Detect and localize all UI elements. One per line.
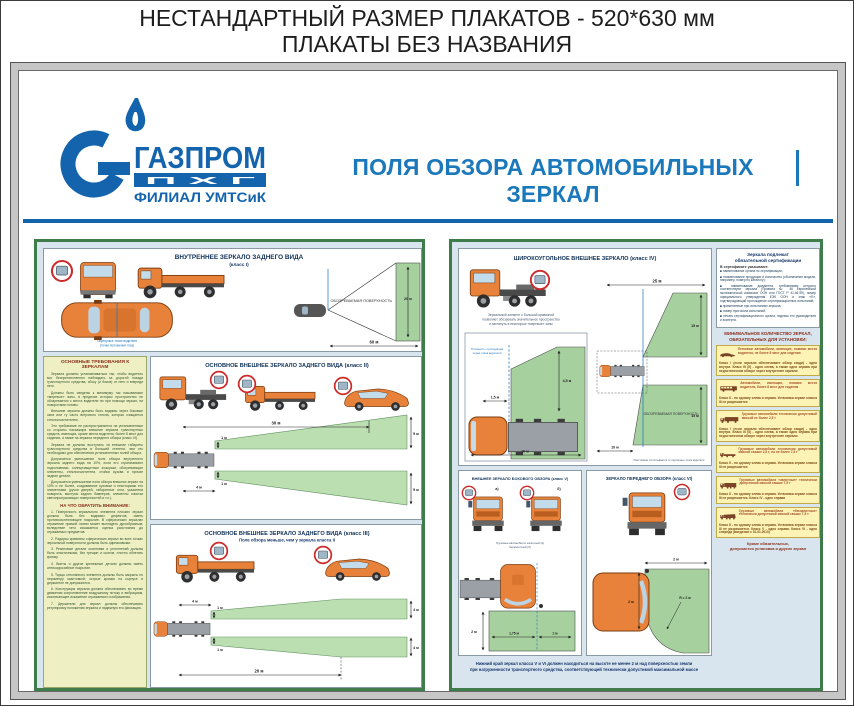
req-p3: Внешние зеркала должны быть видимы через… bbox=[47, 409, 143, 421]
req-p4: Это требование не распространяется на ус… bbox=[47, 424, 143, 440]
class4-caption-3: и заглянуть в некоторые «мертвые» зоны bbox=[489, 322, 553, 326]
card-classes: Класс II - по одному слева и справа. Уст… bbox=[719, 397, 817, 404]
class4-near-dim: 10 м bbox=[611, 446, 619, 450]
class5-caption-2: бескапотный (б) bbox=[509, 545, 531, 549]
class2-length: 30 м bbox=[272, 421, 281, 426]
req-p2: Должны быть сведены к минимуму так назыв… bbox=[47, 391, 143, 407]
mirror-callout-icon bbox=[315, 547, 332, 564]
plane-note-2: через глаза водителя bbox=[473, 351, 502, 355]
card-desc: Автомобили, имеющие, помимо места водите… bbox=[740, 382, 817, 389]
class5-w2: 1 м bbox=[552, 631, 558, 635]
class2-far-bottom: 5 м bbox=[413, 488, 419, 492]
truck-front-icon bbox=[526, 497, 561, 531]
brand-name: ГАЗПРОМ bbox=[134, 140, 266, 175]
class5-surface bbox=[489, 611, 575, 651]
att-4: 4. Винты и другие крепежные детали должн… bbox=[47, 562, 143, 570]
class4-inset-h: 4,5 м bbox=[563, 379, 572, 383]
truck-icon bbox=[719, 448, 737, 461]
right-panel: ШИРОКОУГОЛЬНОЕ ВНЕШНЕЕ ЗЕРКАЛО (класс IV… bbox=[449, 239, 823, 691]
card-desc: Грузовые автомобили «капотные» техническ… bbox=[740, 479, 818, 486]
car-side-icon bbox=[719, 348, 736, 361]
cab-top-icon bbox=[593, 573, 649, 631]
title-accent-bar bbox=[796, 150, 799, 186]
cert-item: ■ печать сертификационного органа, подпи… bbox=[720, 315, 816, 323]
truck-side-icon bbox=[246, 386, 315, 410]
card-classes: Класс I (если зеркало обеспечивает обзор… bbox=[719, 362, 817, 373]
hatchback-icon bbox=[345, 389, 409, 411]
req-p5: Зеркала не должны выступать за внешние г… bbox=[47, 443, 143, 455]
poster-page: НЕСТАНДАРТНЫЙ РАЗМЕР ПЛАКАТОВ - 520*630 … bbox=[0, 0, 854, 706]
mirror-callout-icon bbox=[675, 485, 690, 500]
class3-far-top: 4 м bbox=[413, 608, 419, 612]
poster-title: ПОЛЯ ОБЗОРА АВТОМОБИЛЬНЫХ ЗЕРКАЛ bbox=[318, 154, 788, 208]
mirror-card: Легковые автомобили, имеющие, помимо мес… bbox=[716, 345, 820, 377]
truck-top-icon bbox=[154, 452, 214, 469]
mirror-callout-icon bbox=[335, 378, 352, 395]
other-mirrors-note: Кроме обязательных, допускается установк… bbox=[716, 542, 820, 552]
poster-inner: ГАЗПРОМ П Х Г ФИЛИАЛ УМТСиК ПОЛЯ ОБЗОРА … bbox=[18, 70, 838, 692]
van-rear-icon bbox=[80, 262, 115, 298]
mirror-callout-icon bbox=[531, 271, 549, 289]
mirror-card: Грузовые автомобили технически допустимо… bbox=[716, 410, 820, 442]
truck-front-icon bbox=[623, 493, 667, 535]
class5-w1: 1,75 м bbox=[509, 631, 519, 635]
certification-list: ■ наименование органа по сертификации; ■… bbox=[720, 270, 816, 323]
brand-branch: ФИЛИАЛ УМТСиК bbox=[134, 189, 266, 205]
class4-title: ШИРОКОУГОЛЬНОЕ ВНЕШНЕЕ ЗЕРКАЛО (класс IV… bbox=[514, 256, 657, 262]
card-classes: Класс II - по одному слева и справа. Уст… bbox=[719, 524, 817, 535]
att-7: 7. Держатели для зеркал должны обеспечив… bbox=[47, 602, 143, 610]
class3-subtitle: Поле обзора меньше, чем у зеркала класса… bbox=[239, 538, 335, 543]
class2-diagram: ОСНОВНОЕ ВНЕШНЕЕ ЗЕРКАЛО ЗАДНЕГО ВИДА (к… bbox=[151, 357, 422, 520]
class4-length: 25 м bbox=[653, 278, 662, 283]
truck-top-icon bbox=[154, 621, 210, 636]
gazprom-g-icon bbox=[59, 129, 130, 199]
card-desc: Грузовые автомобили технически допустимо… bbox=[742, 413, 817, 420]
page-title: НЕСТАНДАРТНЫЙ РАЗМЕР ПЛАКАТОВ - 520*630 … bbox=[1, 5, 853, 57]
other-mirrors-note-line2: допускается установка и других зеркал bbox=[716, 547, 820, 552]
class2-near-top: 1 м bbox=[221, 436, 227, 440]
att-5: 5. Торцы стеклянного элемента должны быт… bbox=[47, 573, 143, 585]
class1-klass: (класс I) bbox=[229, 262, 249, 268]
class2-far-top: 5 м bbox=[413, 432, 419, 436]
class6-panel: ЗЕРКАЛО ПЕРЕДНЕГО ОБЗОРА (класс VI) 2 м … bbox=[586, 470, 712, 656]
heavy-truck-icon bbox=[719, 479, 738, 492]
certification-title-2: обязательной сертификации bbox=[720, 258, 816, 264]
class5-title: ВНЕШНЕЕ ЗЕРКАЛО БОКОВОГО ОБЗОРА (класс V… bbox=[472, 477, 569, 481]
card-desc: Легковые автомобили, имеющие, помимо мес… bbox=[738, 348, 817, 355]
mirror-callout-icon bbox=[211, 372, 228, 389]
attention-title: НА ЧТО ОБРАТИТЬ ВНИМАНИЕ: bbox=[47, 503, 143, 508]
requirements-panel: ОСНОВНЫЕ ТРЕБОВАНИЯ К ЗЕРКАЛАМ Зеркала д… bbox=[43, 356, 147, 688]
trailer-top-icon bbox=[508, 419, 577, 455]
req-p1: Зеркала должны устанавливаться так, чтоб… bbox=[47, 372, 143, 388]
class5-label-b: б) bbox=[557, 487, 561, 491]
class1-surface-label: ОБОЗРЕВАЕМАЯ ПОВЕРХНОСТЬ bbox=[331, 299, 393, 303]
class2-panel: ОСНОВНОЕ ВНЕШНЕЕ ЗЕРКАЛО ЗАДНЕГО ВИДА (к… bbox=[150, 356, 422, 520]
mirror-card: Грузовые автомобили «капотные» техническ… bbox=[716, 476, 820, 504]
class2-offset: 4 м bbox=[196, 486, 202, 490]
class6-r: R = 2 м bbox=[679, 596, 691, 600]
cabover-truck-icon bbox=[719, 510, 737, 523]
class3-offset: 4 м bbox=[192, 600, 198, 604]
card-desc: Грузовые автомобили технически допустимо… bbox=[739, 448, 817, 455]
gazprom-logo: ГАЗПРОМ П Х Г ФИЛИАЛ УМТСиК bbox=[38, 96, 278, 216]
class3-diagram: ОСНОВНОЕ ВНЕШНЕЕ ЗЕРКАЛО ЗАДНЕГО ВИДА (к… bbox=[151, 525, 422, 688]
req-p7: Допускается уменьшение поля обзора внешн… bbox=[47, 480, 143, 500]
cert-item: ■ наименование продукции и количество (о… bbox=[720, 276, 816, 284]
att-3: 3. Резиновые детали окантовки и уплотнен… bbox=[47, 547, 143, 559]
class6-front-dim: 2 м bbox=[673, 557, 679, 561]
card-desc: Грузовые автомобили «бескапотные» технич… bbox=[739, 510, 817, 517]
page-title-line1: НЕСТАНДАРТНЫЙ РАЗМЕР ПЛАКАТОВ - 520*630 … bbox=[1, 5, 853, 31]
brand-unit: П Х Г bbox=[145, 176, 256, 187]
class4-surface-label: ОБОЗРЕВАЕМАЯ ПОВЕРХНОСТЬ bbox=[644, 412, 700, 416]
requirements-title: ОСНОВНЫЕ ТРЕБОВАНИЯ К ЗЕРКАЛАМ bbox=[47, 360, 143, 370]
eye-note-2: (точки положения глаз) bbox=[100, 344, 134, 348]
truck-front-icon bbox=[468, 497, 503, 531]
class4-top-dim: 15 м bbox=[691, 324, 699, 328]
class4-caption-1: Зеркальный элемент с большой кривизной bbox=[488, 313, 554, 317]
page-title-line2: ПЛАКАТЫ БЕЗ НАЗВАНИЯ bbox=[1, 31, 853, 57]
mirror-card: Грузовые автомобили технически допустимо… bbox=[716, 445, 820, 473]
bus-side-icon bbox=[719, 382, 738, 395]
class4-inset-w: 1,5 м bbox=[491, 396, 500, 400]
mirror-callout-icon bbox=[239, 376, 256, 393]
minimum-title: МИНИМАЛЬНОЕ КОЛИЧЕСТВО ЗЕРКАЛ, ОБЯЗАТЕЛЬ… bbox=[716, 331, 820, 342]
left-panel: ВНУТРЕННЕЕ ЗЕРКАЛО ЗАДНЕГО ВИДА (класс I… bbox=[34, 239, 425, 691]
att-1: 1. Поверхность зеркального элемента плос… bbox=[47, 510, 143, 534]
class56-note: Нижний край зеркал класса V и VI должен … bbox=[458, 661, 710, 672]
class2-title: ОСНОВНОЕ ВНЕШНЕЕ ЗЕРКАЛО ЗАДНЕГО ВИДА (к… bbox=[205, 363, 369, 369]
mirror-card: Автомобили, имеющие, помимо места водите… bbox=[716, 379, 820, 407]
class3-panel: ОСНОВНОЕ ВНЕШНЕЕ ЗЕРКАЛО ЗАДНЕГО ВИДА (к… bbox=[150, 524, 422, 688]
cert-item: ■ наименование органа по сертификации; bbox=[720, 270, 816, 274]
card-classes: Класс II - по одному слева и справа. Уст… bbox=[719, 493, 817, 500]
class4-note: Расстояние отсчитывается от окулярных то… bbox=[634, 458, 705, 462]
att-6: 6. Конструкция зеркала должна обеспечива… bbox=[47, 587, 143, 599]
class5-label-a: а) bbox=[495, 487, 499, 491]
req-p6: Допускается уменьшение поля обзора внутр… bbox=[47, 457, 143, 477]
card-classes: Класс II - по одному слева и справа. Уст… bbox=[719, 462, 817, 469]
gazprom-flame-icon bbox=[126, 98, 146, 131]
cab-top-icon bbox=[501, 564, 536, 608]
class6-title: ЗЕРКАЛО ПЕРЕДНЕГО ОБЗОРА (класс VI) bbox=[606, 476, 693, 481]
class4-panel: ШИРОКОУГОЛЬНОЕ ВНЕШНЕЕ ЗЕРКАЛО (класс IV… bbox=[458, 248, 712, 466]
class56-note-line2: при нагруженности транспортного средства… bbox=[458, 667, 710, 673]
class1-panel: ВНУТРЕННЕЕ ЗЕРКАЛО ЗАДНЕГО ВИДА (класс I… bbox=[43, 248, 422, 352]
class5-diagram: ВНЕШНЕЕ ЗЕРКАЛО БОКОВОГО ОБЗОРА (класс V… bbox=[459, 471, 581, 655]
trailer-top-icon bbox=[460, 578, 502, 600]
class56-note-line1: Нижний край зеркал класса V и VI должен … bbox=[458, 661, 710, 667]
mirror-callout-icon bbox=[520, 486, 533, 499]
class5-h: 2 м bbox=[471, 630, 477, 634]
class1-title: ВНУТРЕННЕЕ ЗЕРКАЛО ЗАДНЕГО ВИДА bbox=[175, 254, 304, 261]
truck-top-icon bbox=[600, 365, 644, 377]
class3-near-bottom: 1 м bbox=[217, 648, 223, 652]
class4-caption-2: позволяет обозревать значительное простр… bbox=[482, 318, 560, 322]
mirror-callout-icon bbox=[211, 543, 228, 560]
right-column: Зеркала подлежат обязательной сертификац… bbox=[716, 248, 820, 686]
mirror-callout-icon bbox=[462, 486, 475, 499]
att-2: 2. Радиусы кривизны сферических зеркал в… bbox=[47, 537, 143, 545]
header-rule bbox=[23, 219, 833, 223]
class6-diagram: ЗЕРКАЛО ПЕРЕДНЕГО ОБЗОРА (класс VI) 2 м … bbox=[587, 471, 711, 655]
light-truck-icon bbox=[719, 413, 740, 426]
class6-h: 2 м bbox=[628, 600, 634, 604]
class5-panel: ВНЕШНЕЕ ЗЕРКАЛО БОКОВОГО ОБЗОРА (класс V… bbox=[458, 470, 582, 656]
certification-panel: Зеркала подлежат обязательной сертификац… bbox=[716, 248, 820, 328]
mirror-callout-icon bbox=[52, 261, 72, 281]
cert-item: ■ наименование документа, требованиям ко… bbox=[720, 285, 816, 304]
class3-title: ОСНОВНОЕ ВНЕШНЕЕ ЗЕРКАЛО ЗАДНЕГО ВИДА (к… bbox=[204, 531, 369, 537]
class1-diagram: ВНУТРЕННЕЕ ЗЕРКАЛО ЗАДНЕГО ВИДА (класс I… bbox=[44, 249, 422, 351]
card-classes: Класс I (если зеркало обеспечивает обзор… bbox=[719, 428, 817, 439]
class3-far-bottom: 4 м bbox=[413, 646, 419, 650]
hatchback-icon bbox=[326, 559, 390, 581]
eye-note-1: Окулярные точки водителя bbox=[97, 339, 137, 343]
class4-diagram: ШИРОКОУГОЛЬНОЕ ВНЕШНЕЕ ЗЕРКАЛО (класс IV… bbox=[459, 249, 711, 465]
class6-surface bbox=[645, 569, 709, 653]
small-car-top-icon bbox=[294, 304, 326, 317]
class2-near-bottom: 1 м bbox=[221, 482, 227, 486]
truck-side-icon bbox=[138, 268, 224, 298]
class3-length: 20 м bbox=[255, 669, 264, 674]
class1-height-dim: 20 м bbox=[404, 297, 412, 301]
poster-frame: ГАЗПРОМ П Х Г ФИЛИАЛ УМТСиК ПОЛЯ ОБЗОРА … bbox=[11, 63, 845, 699]
class1-width-dim: 60 м bbox=[370, 340, 379, 345]
mirror-card: Грузовые автомобили «бескапотные» технич… bbox=[716, 507, 820, 539]
class4-inset-len: 10 м bbox=[521, 449, 529, 453]
class3-near-top: 1 м bbox=[217, 606, 223, 610]
